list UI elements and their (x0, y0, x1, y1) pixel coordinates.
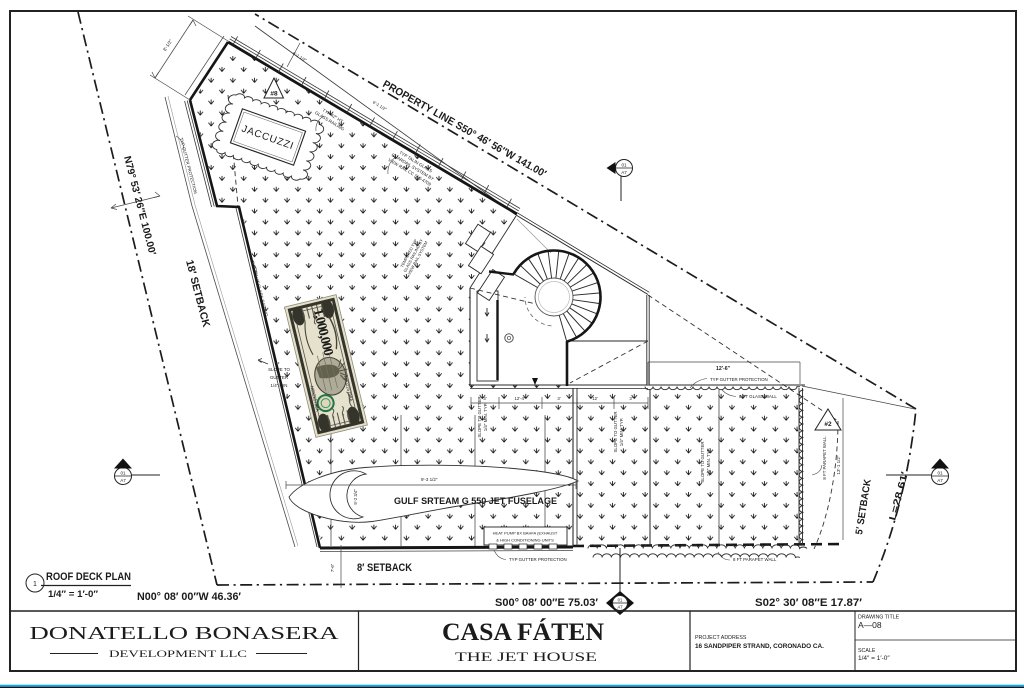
svg-text:ROOF DECK PLAN: ROOF DECK PLAN (46, 571, 131, 583)
svg-text:1/4″ MIN: 1/4″ MIN (271, 383, 288, 388)
svg-text:& HIGH CONDITIONING UNITS: & HIGH CONDITIONING UNITS (496, 538, 554, 543)
svg-text:A—08: A—08 (858, 620, 882, 630)
svg-text:8′ SETBACK: 8′ SETBACK (357, 562, 412, 574)
svg-text:PROJECT ADDRESS: PROJECT ADDRESS (695, 635, 747, 641)
svg-text:12′-6″: 12′-6″ (716, 366, 731, 372)
svg-text:SLOPE TO GUTTER: SLOPE TO GUTTER (613, 411, 618, 452)
svg-text:3': 3' (483, 396, 486, 401)
svg-text:A7: A7 (937, 478, 943, 483)
svg-text:8 FT PARAPET WALL: 8 FT PARAPET WALL (822, 436, 827, 480)
svg-text:01: 01 (937, 471, 943, 476)
svg-text:1/4″ MIN. TYP.: 1/4″ MIN. TYP. (706, 448, 711, 476)
svg-text:1/4″ = 1′-0″: 1/4″ = 1′-0″ (858, 655, 890, 662)
svg-text:DONATELLO BONASERA: DONATELLO BONASERA (30, 623, 340, 643)
svg-text:7′-6″: 7′-6″ (330, 563, 335, 572)
svg-text:HEAT PUMP BX BAHFA (EXHAUST: HEAT PUMP BX BAHFA (EXHAUST (493, 531, 558, 536)
svg-text:GULF SRTEAM G 550 JET FUSELAGE: GULF SRTEAM G 550 JET FUSELAGE (394, 496, 557, 507)
svg-text:12'-4″: 12'-4″ (515, 396, 526, 401)
svg-text:01: 01 (120, 471, 126, 476)
svg-text:1/4″ = 1′-0″: 1/4″ = 1′-0″ (48, 589, 99, 599)
svg-text:A7: A7 (617, 605, 623, 610)
svg-text:3': 3' (557, 396, 560, 401)
svg-text:3': 3' (629, 396, 632, 401)
svg-text:1: 1 (33, 581, 37, 588)
svg-text:TYP GUTTER PROTECTION: TYP GUTTER PROTECTION (509, 557, 567, 562)
svg-text:A7: A7 (621, 170, 627, 175)
svg-text:#2: #2 (824, 421, 832, 428)
svg-text:9′-3 1/2″: 9′-3 1/2″ (421, 477, 438, 482)
svg-text:5′-2 3/4″: 5′-2 3/4″ (353, 489, 358, 505)
svg-text:S00° 08′ 00″E 75.03′: S00° 08′ 00″E 75.03′ (495, 597, 598, 609)
svg-text:S02° 30′ 08″E 17.87′: S02° 30′ 08″E 17.87′ (755, 597, 862, 609)
svg-text:16 SANDPIPER STRAND, CORONADO: 16 SANDPIPER STRAND, CORONADO CA. (695, 643, 824, 650)
svg-text:SLOPE TO GUTTER: SLOPE TO GUTTER (700, 441, 705, 482)
svg-text:13′-1 1/2″: 13′-1 1/2″ (836, 455, 841, 474)
svg-text:12': 12' (592, 396, 598, 401)
svg-text:DEVELOPMENT LLC: DEVELOPMENT LLC (109, 650, 247, 660)
svg-text:01: 01 (618, 598, 623, 603)
svg-text:1/4″ MIN. TYP.: 1/4″ MIN. TYP. (483, 403, 488, 431)
svg-text:8 FT GLASS WALL: 8 FT GLASS WALL (739, 394, 777, 399)
svg-text:8 FT PARAPET WALL: 8 FT PARAPET WALL (733, 557, 777, 562)
svg-text:CASA FÁTEN: CASA FÁTEN (442, 617, 605, 646)
svg-text:N00° 08′ 00″W 46.36′: N00° 08′ 00″W 46.36′ (137, 591, 241, 603)
svg-text:GUTTER: GUTTER (270, 375, 288, 380)
svg-text:1/4″ MIN. TYP.: 1/4″ MIN. TYP. (619, 418, 624, 446)
svg-text:SCALE: SCALE (858, 648, 876, 654)
svg-text:SLOPE TO GUTTER: SLOPE TO GUTTER (477, 396, 482, 437)
svg-text:THE JET HOUSE: THE JET HOUSE (455, 649, 597, 664)
svg-text:01: 01 (621, 163, 627, 168)
svg-text:SLOPE TO: SLOPE TO (268, 367, 290, 372)
svg-text:TYP GUTTER PROTECTION: TYP GUTTER PROTECTION (710, 377, 768, 382)
svg-text:A7: A7 (120, 478, 126, 483)
svg-text:#8: #8 (270, 91, 278, 98)
